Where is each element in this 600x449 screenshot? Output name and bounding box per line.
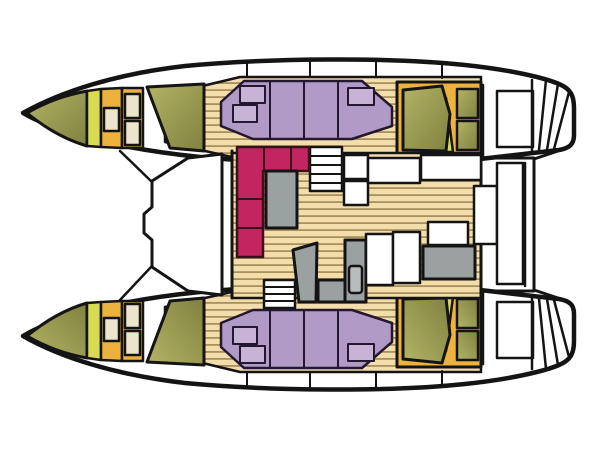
cabinet-block (421, 155, 481, 180)
salon-table (266, 171, 297, 228)
settee-pillow (233, 105, 257, 122)
foredeck-locker-panel (144, 154, 222, 295)
floor-plan-canvas (0, 0, 600, 449)
cockpit-bench (428, 222, 468, 245)
cabinet-block (368, 158, 420, 183)
cockpit-bench (474, 186, 497, 244)
bed-frame-hatch (457, 121, 478, 150)
heads-compartment (497, 91, 533, 147)
bow-deck-hatch (125, 121, 140, 145)
settee-pillow (348, 88, 374, 105)
bow-deck-hatch (104, 108, 119, 131)
cockpit-module (423, 246, 475, 279)
bed-frame-hatch (457, 89, 478, 118)
bow-deck-hatch (125, 94, 140, 118)
stairs-well (310, 147, 342, 191)
catamaran-floor-plan (0, 0, 600, 449)
cabinet-block (344, 155, 368, 179)
aft-cabin-bed (403, 86, 450, 151)
cockpit-table (497, 163, 523, 284)
galley-counter (318, 280, 345, 302)
foredeck-seam (120, 266, 152, 300)
companionway-stairs-starboard (310, 147, 342, 191)
foredeck-seam (120, 151, 152, 182)
cabinet-block (344, 181, 368, 205)
settee-pillow (240, 86, 265, 103)
galley-worktop (366, 234, 393, 285)
galley-worktop (393, 232, 420, 283)
galley-sink (349, 266, 362, 293)
galley-counter (293, 243, 317, 302)
berth-wedge-cushion (87, 89, 101, 147)
companionway-stairs-port (264, 280, 295, 308)
bow-v-berth (27, 91, 87, 146)
foredeck (120, 151, 222, 300)
